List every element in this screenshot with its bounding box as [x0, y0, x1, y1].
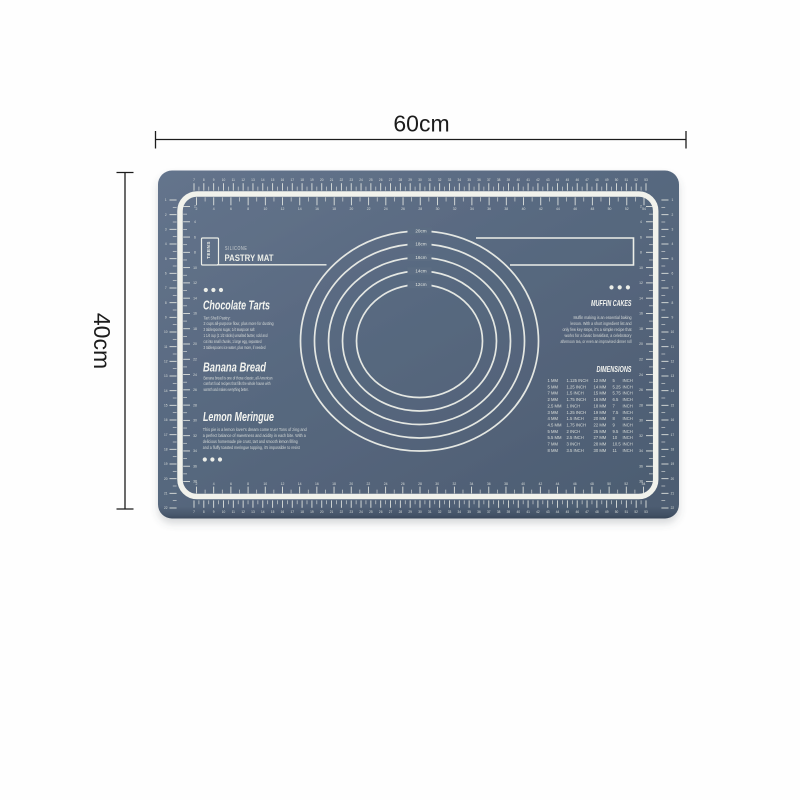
svg-text:3 INCH: 3 INCH [567, 442, 581, 447]
svg-text:1.5 INCH: 1.5 INCH [567, 416, 584, 421]
svg-text:18: 18 [164, 448, 168, 452]
svg-text:44: 44 [556, 482, 560, 486]
svg-text:41: 41 [526, 510, 530, 514]
svg-text:3 MM: 3 MM [548, 410, 559, 415]
svg-text:8: 8 [203, 178, 205, 182]
svg-text:10: 10 [263, 207, 267, 211]
svg-text:1 1/4 cup (1 1/2 sticks) unsal: 1 1/4 cup (1 1/2 sticks) unsalted butter… [204, 333, 269, 338]
svg-text:14cm: 14cm [415, 269, 426, 274]
svg-text:12: 12 [671, 360, 675, 364]
svg-text:24: 24 [384, 482, 388, 486]
svg-text:36: 36 [487, 207, 491, 211]
svg-text:17: 17 [290, 178, 294, 182]
svg-text:14: 14 [261, 510, 265, 514]
svg-text:Banana Bread: Banana Bread [203, 361, 266, 375]
svg-text:comfort food recipes that fill: comfort food recipes that fills the whol… [204, 381, 272, 386]
svg-text:afternoon tea, or even an impr: afternoon tea, or even an improvised din… [561, 339, 632, 344]
svg-text:5.5 MM: 5.5 MM [548, 435, 562, 440]
svg-text:30: 30 [639, 419, 643, 423]
svg-text:14: 14 [298, 482, 302, 486]
svg-text:1.5 INCH: 1.5 INCH [567, 391, 584, 396]
svg-text:4: 4 [165, 242, 167, 246]
svg-text:35: 35 [467, 178, 471, 182]
svg-text:15: 15 [271, 510, 275, 514]
svg-text:49: 49 [605, 510, 609, 514]
svg-text:1.75 INCH: 1.75 INCH [567, 397, 587, 402]
svg-text:25: 25 [369, 510, 373, 514]
svg-text:34: 34 [639, 449, 643, 453]
svg-text:34: 34 [193, 449, 197, 453]
svg-text:17: 17 [290, 510, 294, 514]
svg-text:32: 32 [193, 434, 197, 438]
svg-text:29: 29 [408, 178, 412, 182]
svg-text:8: 8 [247, 207, 249, 211]
svg-text:43: 43 [546, 510, 550, 514]
svg-text:40: 40 [522, 207, 526, 211]
svg-text:PASTRY MAT: PASTRY MAT [225, 253, 274, 263]
svg-text:1 INCH: 1 INCH [567, 403, 581, 408]
svg-text:lesson. With a short ingredien: lesson. With a short ingredient list and [571, 321, 633, 326]
svg-text:Banana bread is one of those c: Banana bread is one of those classic, al… [204, 375, 274, 380]
svg-text:14: 14 [671, 389, 675, 393]
svg-text:16: 16 [671, 418, 675, 422]
svg-text:and a fluffy toasted meringue: and a fluffy toasted meringue topping, i… [203, 445, 301, 450]
svg-text:a perfect balance of sweetness: a perfect balance of sweetness and acidi… [203, 433, 307, 438]
svg-text:32: 32 [453, 207, 457, 211]
svg-text:38: 38 [497, 178, 501, 182]
svg-text:29: 29 [408, 510, 412, 514]
svg-text:6: 6 [640, 235, 642, 239]
svg-text:14: 14 [261, 178, 265, 182]
svg-text:13: 13 [251, 178, 255, 182]
svg-text:9: 9 [165, 316, 167, 320]
svg-text:12: 12 [193, 281, 197, 285]
svg-text:39: 39 [507, 510, 511, 514]
svg-text:20: 20 [639, 342, 643, 346]
svg-text:5 MM: 5 MM [548, 384, 559, 389]
svg-text:8: 8 [165, 301, 167, 305]
svg-text:42: 42 [539, 207, 543, 211]
svg-text:18: 18 [300, 178, 304, 182]
svg-text:7 MM: 7 MM [548, 442, 559, 447]
svg-text:4: 4 [672, 242, 674, 246]
svg-text:20cm: 20cm [415, 229, 426, 234]
svg-text:36: 36 [477, 510, 481, 514]
svg-text:Muffin making is an essential: Muffin making is an essential baking [574, 315, 633, 320]
svg-text:5.75: 5.75 [613, 391, 622, 396]
svg-text:SILICONE: SILICONE [225, 246, 248, 252]
svg-text:34: 34 [470, 482, 474, 486]
svg-text:48: 48 [595, 510, 599, 514]
svg-text:2 cups all-purpose flour, plus: 2 cups all-purpose flour, plus more for … [204, 321, 275, 326]
svg-text:28: 28 [399, 510, 403, 514]
svg-text:24: 24 [193, 373, 197, 377]
svg-text:INCH: INCH [623, 378, 633, 383]
svg-text:4: 4 [194, 220, 196, 224]
svg-text:19: 19 [310, 178, 314, 182]
svg-text:54: 54 [642, 207, 646, 211]
svg-text:5: 5 [672, 257, 674, 261]
svg-text:12: 12 [164, 360, 168, 364]
svg-text:2.5 INCH: 2.5 INCH [567, 435, 584, 440]
svg-text:21: 21 [164, 492, 168, 496]
svg-text:46: 46 [575, 178, 579, 182]
svg-text:9: 9 [213, 510, 215, 514]
svg-text:42: 42 [536, 178, 540, 182]
svg-text:52: 52 [625, 207, 629, 211]
svg-text:50: 50 [615, 510, 619, 514]
svg-text:This pie is a lemon lover's dr: This pie is a lemon lover's dream come t… [203, 427, 308, 432]
svg-text:6: 6 [165, 272, 167, 276]
svg-text:37: 37 [487, 178, 491, 182]
svg-text:16: 16 [639, 312, 643, 316]
svg-text:16: 16 [193, 312, 197, 316]
svg-text:10.5: 10.5 [613, 442, 622, 447]
svg-text:1: 1 [672, 198, 674, 202]
svg-text:4: 4 [640, 220, 642, 224]
svg-text:5.25: 5.25 [613, 384, 622, 389]
svg-text:3: 3 [165, 228, 167, 232]
svg-text:45: 45 [566, 510, 570, 514]
svg-text:11: 11 [164, 345, 168, 349]
svg-text:22: 22 [671, 506, 675, 510]
svg-text:20: 20 [349, 482, 353, 486]
svg-text:43: 43 [546, 178, 550, 182]
svg-text:11: 11 [613, 448, 618, 453]
svg-text:46: 46 [575, 510, 579, 514]
svg-text:6: 6 [230, 482, 232, 486]
svg-text:38: 38 [504, 207, 508, 211]
svg-text:10: 10 [263, 482, 267, 486]
svg-text:cut into small chunks, 1 large: cut into small chunks, 1 large egg, sepa… [204, 339, 263, 344]
svg-text:1.25 INCH: 1.25 INCH [567, 410, 587, 415]
svg-text:33: 33 [448, 510, 452, 514]
svg-text:INCH: INCH [623, 416, 633, 421]
svg-text:26: 26 [379, 510, 383, 514]
svg-text:16: 16 [281, 178, 285, 182]
svg-text:1.25 INCH: 1.25 INCH [567, 384, 587, 389]
svg-text:36: 36 [639, 464, 643, 468]
svg-text:32: 32 [438, 510, 442, 514]
svg-text:11: 11 [671, 345, 675, 349]
svg-text:20: 20 [193, 342, 197, 346]
svg-text:20: 20 [671, 477, 675, 481]
svg-text:40: 40 [521, 482, 525, 486]
svg-text:9: 9 [672, 316, 674, 320]
svg-text:21: 21 [671, 492, 675, 496]
svg-text:40: 40 [516, 178, 520, 182]
svg-text:9.5: 9.5 [613, 429, 619, 434]
svg-text:30 MM: 30 MM [594, 448, 607, 453]
svg-text:6: 6 [194, 235, 196, 239]
svg-text:23: 23 [349, 510, 353, 514]
svg-text:60cm: 60cm [393, 111, 449, 137]
svg-text:1.75 INCH: 1.75 INCH [567, 422, 587, 427]
svg-text:INCH: INCH [623, 435, 633, 440]
svg-text:20 MM: 20 MM [594, 416, 607, 421]
svg-text:26: 26 [401, 207, 405, 211]
svg-text:13: 13 [164, 374, 168, 378]
svg-text:45: 45 [566, 178, 570, 182]
svg-text:INCH: INCH [623, 403, 633, 408]
svg-text:20: 20 [164, 477, 168, 481]
svg-text:51: 51 [625, 510, 629, 514]
svg-text:13: 13 [671, 374, 675, 378]
svg-text:2: 2 [194, 205, 196, 209]
svg-text:12: 12 [241, 178, 245, 182]
svg-text:24: 24 [359, 178, 363, 182]
svg-text:INCH: INCH [623, 429, 633, 434]
svg-text:12 MM: 12 MM [594, 378, 607, 383]
svg-text:41: 41 [526, 178, 530, 182]
svg-text:9: 9 [213, 178, 215, 182]
svg-text:31: 31 [428, 178, 432, 182]
svg-text:7.5: 7.5 [613, 410, 619, 415]
svg-text:39: 39 [507, 178, 511, 182]
svg-text:4 MM: 4 MM [548, 416, 559, 421]
svg-text:28 MM: 28 MM [594, 442, 607, 447]
svg-text:27: 27 [389, 510, 393, 514]
svg-text:3: 3 [672, 228, 674, 232]
svg-text:16: 16 [315, 482, 319, 486]
svg-text:10: 10 [613, 435, 618, 440]
svg-text:47: 47 [585, 510, 589, 514]
svg-text:36: 36 [487, 482, 491, 486]
svg-text:20: 20 [320, 178, 324, 182]
svg-text:21: 21 [330, 510, 334, 514]
svg-text:5 MM: 5 MM [548, 429, 559, 434]
svg-text:2.5 MM: 2.5 MM [548, 403, 562, 408]
svg-text:4: 4 [213, 482, 215, 486]
svg-text:20: 20 [350, 207, 354, 211]
svg-text:17: 17 [164, 433, 168, 437]
svg-text:40: 40 [516, 510, 520, 514]
svg-text:22: 22 [340, 510, 344, 514]
svg-text:10: 10 [193, 266, 197, 270]
svg-text:26: 26 [193, 388, 197, 392]
svg-text:Lemon Meringue: Lemon Meringue [203, 410, 274, 424]
svg-text:2: 2 [672, 213, 674, 217]
svg-text:28: 28 [193, 403, 197, 407]
svg-text:15 MM: 15 MM [594, 391, 607, 396]
svg-text:32: 32 [452, 482, 456, 486]
svg-text:INCH: INCH [623, 397, 633, 402]
svg-text:INCH: INCH [623, 384, 633, 389]
svg-text:2: 2 [165, 213, 167, 217]
svg-text:27: 27 [389, 178, 393, 182]
svg-text:delicious homemade pie crust,: delicious homemade pie crust, tart and s… [203, 439, 299, 444]
svg-text:32: 32 [639, 434, 643, 438]
svg-text:8: 8 [640, 251, 642, 255]
svg-text:34: 34 [458, 510, 462, 514]
svg-text:DIMENSIONS: DIMENSIONS [597, 365, 632, 374]
svg-text:Chocolate Tarts: Chocolate Tarts [203, 299, 270, 313]
svg-text:14: 14 [193, 296, 197, 300]
svg-text:7: 7 [193, 510, 195, 514]
svg-text:10: 10 [164, 330, 168, 334]
svg-text:3 tablespoons ice water, plus: 3 tablespoons ice water, plus more, if n… [204, 345, 267, 350]
svg-text:3.5 INCH: 3.5 INCH [567, 448, 584, 453]
svg-text:8: 8 [203, 510, 205, 514]
svg-text:17: 17 [671, 433, 675, 437]
svg-text:12cm: 12cm [415, 282, 426, 287]
svg-text:16: 16 [164, 418, 168, 422]
svg-text:INCH: INCH [623, 391, 633, 396]
svg-text:53: 53 [644, 510, 648, 514]
svg-text:MUFFIN CAKES: MUFFIN CAKES [591, 299, 632, 308]
svg-text:28: 28 [418, 207, 422, 211]
svg-text:38: 38 [497, 510, 501, 514]
svg-text:22: 22 [193, 357, 197, 361]
svg-text:8 MM: 8 MM [548, 448, 559, 453]
svg-text:38: 38 [504, 482, 508, 486]
svg-text:48: 48 [590, 207, 594, 211]
svg-text:21: 21 [330, 178, 334, 182]
svg-text:1 MM: 1 MM [548, 378, 559, 383]
svg-text:warmth and makes everything be: warmth and makes everything better. [204, 387, 249, 392]
svg-text:18 MM: 18 MM [594, 403, 607, 408]
svg-text:40cm: 40cm [89, 313, 115, 369]
svg-text:4.5 MM: 4.5 MM [548, 422, 562, 427]
svg-text:47: 47 [585, 178, 589, 182]
svg-text:34: 34 [458, 178, 462, 182]
svg-text:18: 18 [300, 510, 304, 514]
svg-text:49: 49 [605, 178, 609, 182]
svg-text:10: 10 [222, 510, 226, 514]
svg-text:24: 24 [359, 510, 363, 514]
svg-text:42: 42 [538, 482, 542, 486]
svg-text:26: 26 [639, 388, 643, 392]
svg-text:2: 2 [196, 482, 198, 486]
svg-text:44: 44 [556, 178, 560, 182]
svg-text:5: 5 [165, 257, 167, 261]
svg-text:50: 50 [608, 207, 612, 211]
svg-text:8: 8 [672, 301, 674, 305]
svg-text:28: 28 [639, 403, 643, 407]
svg-text:50: 50 [615, 178, 619, 182]
svg-text:12: 12 [281, 207, 285, 211]
svg-text:18: 18 [193, 327, 197, 331]
svg-text:22: 22 [340, 178, 344, 182]
svg-text:36: 36 [477, 178, 481, 182]
svg-text:22 MM: 22 MM [594, 422, 607, 427]
svg-text:14 MM: 14 MM [594, 384, 607, 389]
svg-text:works for a basic breakfast, a: works for a basic breakfast, a celebrato… [565, 333, 633, 338]
svg-text:10: 10 [639, 266, 643, 270]
svg-text:44: 44 [556, 510, 560, 514]
svg-text:53: 53 [644, 178, 648, 182]
svg-text:22: 22 [367, 207, 371, 211]
svg-text:19: 19 [164, 462, 168, 466]
svg-text:24: 24 [384, 207, 388, 211]
svg-text:30: 30 [193, 419, 197, 423]
svg-text:11: 11 [232, 178, 236, 182]
svg-text:INCH: INCH [623, 410, 633, 415]
svg-text:6: 6 [672, 272, 674, 276]
svg-text:28: 28 [399, 178, 403, 182]
svg-text:16: 16 [281, 510, 285, 514]
svg-text:30: 30 [436, 207, 440, 211]
svg-text:19 MM: 19 MM [594, 410, 607, 415]
svg-text:23: 23 [349, 178, 353, 182]
svg-text:54: 54 [642, 482, 646, 486]
svg-text:34: 34 [470, 207, 474, 211]
svg-text:25 MM: 25 MM [594, 429, 607, 434]
svg-text:51: 51 [625, 178, 629, 182]
svg-text:16 MM: 16 MM [594, 397, 607, 402]
svg-text:3 tablespoons sugar, 1/4 teasp: 3 tablespoons sugar, 1/4 teaspoon salt [204, 327, 256, 332]
svg-text:7: 7 [165, 286, 167, 290]
svg-text:14: 14 [639, 296, 643, 300]
svg-text:10: 10 [222, 178, 226, 182]
svg-text:16cm: 16cm [415, 255, 426, 260]
svg-text:only few key steps, it's a sim: only few key steps, it's a simple recipe… [563, 327, 633, 332]
svg-text:44: 44 [556, 207, 560, 211]
svg-text:16: 16 [315, 207, 319, 211]
svg-text:31: 31 [428, 510, 432, 514]
svg-text:6: 6 [230, 207, 232, 211]
svg-text:12: 12 [241, 510, 245, 514]
svg-text:INCH: INCH [623, 448, 633, 453]
svg-text:Tart Shell Pastry:: Tart Shell Pastry: [204, 315, 231, 320]
svg-text:11: 11 [232, 510, 236, 514]
svg-text:26: 26 [379, 178, 383, 182]
svg-text:27 MM: 27 MM [594, 435, 607, 440]
svg-text:2 INCH: 2 INCH [567, 429, 581, 434]
svg-text:7: 7 [193, 178, 195, 182]
svg-text:50: 50 [607, 482, 611, 486]
svg-text:13: 13 [251, 510, 255, 514]
svg-text:19: 19 [310, 510, 314, 514]
svg-text:8: 8 [194, 251, 196, 255]
svg-text:TEENS: TEENS [206, 241, 211, 259]
svg-text:48: 48 [595, 178, 599, 182]
svg-text:12: 12 [281, 482, 285, 486]
svg-text:46: 46 [573, 482, 577, 486]
svg-text:26: 26 [401, 482, 405, 486]
svg-text:28: 28 [418, 482, 422, 486]
svg-text:15: 15 [671, 404, 675, 408]
svg-text:2 MM: 2 MM [548, 397, 559, 402]
svg-text:INCH: INCH [623, 442, 633, 447]
svg-text:37: 37 [487, 510, 491, 514]
svg-text:12: 12 [639, 281, 643, 285]
svg-text:19: 19 [671, 462, 675, 466]
svg-text:18: 18 [332, 482, 336, 486]
svg-text:32: 32 [438, 178, 442, 182]
svg-text:25: 25 [369, 178, 373, 182]
svg-text:52: 52 [624, 482, 628, 486]
svg-text:30: 30 [435, 482, 439, 486]
svg-text:22: 22 [164, 506, 168, 510]
svg-text:46: 46 [573, 207, 577, 211]
svg-text:18: 18 [639, 327, 643, 331]
svg-text:52: 52 [634, 178, 638, 182]
svg-text:1.125 INCH: 1.125 INCH [567, 378, 589, 383]
svg-text:18: 18 [671, 448, 675, 452]
svg-text:33: 33 [448, 178, 452, 182]
svg-text:8: 8 [247, 482, 249, 486]
svg-text:15: 15 [164, 404, 168, 408]
svg-text:36: 36 [193, 464, 197, 468]
svg-text:2: 2 [640, 205, 642, 209]
svg-text:20: 20 [320, 510, 324, 514]
svg-text:6.5: 6.5 [613, 397, 619, 402]
svg-text:INCH: INCH [623, 422, 633, 427]
svg-text:7 MM: 7 MM [548, 391, 559, 396]
svg-text:30: 30 [418, 178, 422, 182]
svg-text:14: 14 [164, 389, 168, 393]
